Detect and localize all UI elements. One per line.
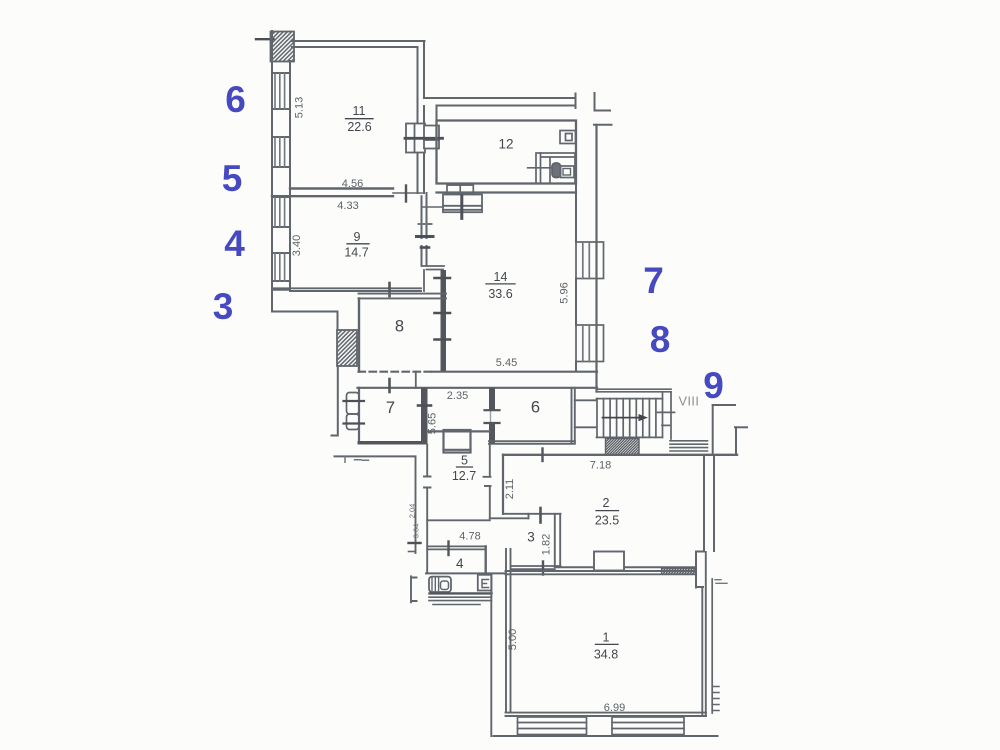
svg-text:22.6: 22.6 <box>347 120 371 134</box>
svg-text:8: 8 <box>650 319 671 360</box>
svg-text:4: 4 <box>224 223 245 264</box>
svg-text:VIII: VIII <box>679 395 700 409</box>
svg-text:5.96: 5.96 <box>559 282 571 303</box>
svg-text:5: 5 <box>222 158 243 199</box>
svg-text:2.35: 2.35 <box>447 390 468 402</box>
svg-text:4: 4 <box>456 556 464 571</box>
svg-text:6: 6 <box>531 399 540 417</box>
svg-text:33.6: 33.6 <box>488 287 512 301</box>
svg-text:1.82: 1.82 <box>541 534 553 555</box>
svg-text:9: 9 <box>703 365 724 406</box>
svg-text:9: 9 <box>354 230 361 244</box>
svg-text:7.18: 7.18 <box>590 460 611 472</box>
svg-text:14: 14 <box>494 270 508 284</box>
svg-text:6: 6 <box>225 79 246 120</box>
svg-text:8: 8 <box>395 318 404 336</box>
svg-text:23.5: 23.5 <box>595 514 619 528</box>
svg-text:7: 7 <box>386 399 395 417</box>
svg-text:11: 11 <box>353 104 366 118</box>
svg-text:1: 1 <box>603 631 610 645</box>
svg-text:5.45: 5.45 <box>496 357 517 369</box>
svg-text:4.56: 4.56 <box>342 178 363 190</box>
svg-text:12.7: 12.7 <box>452 469 476 483</box>
svg-text:34.8: 34.8 <box>594 648 618 662</box>
svg-text:3.40: 3.40 <box>291 235 303 256</box>
svg-text:5.00: 5.00 <box>507 629 519 650</box>
svg-text:4.78: 4.78 <box>459 531 480 543</box>
svg-text:7: 7 <box>643 260 664 301</box>
svg-text:12: 12 <box>498 137 513 152</box>
svg-text:3: 3 <box>527 530 535 545</box>
svg-text:2.11: 2.11 <box>504 479 516 500</box>
svg-text:5: 5 <box>461 454 468 468</box>
svg-text:2.04: 2.04 <box>408 504 417 519</box>
svg-text:3.04: 3.04 <box>412 524 421 539</box>
svg-text:2: 2 <box>603 496 610 510</box>
svg-text:14.7: 14.7 <box>344 246 368 260</box>
svg-text:3: 3 <box>213 286 234 327</box>
svg-text:5.13: 5.13 <box>294 97 306 118</box>
svg-text:4.33: 4.33 <box>337 200 358 212</box>
